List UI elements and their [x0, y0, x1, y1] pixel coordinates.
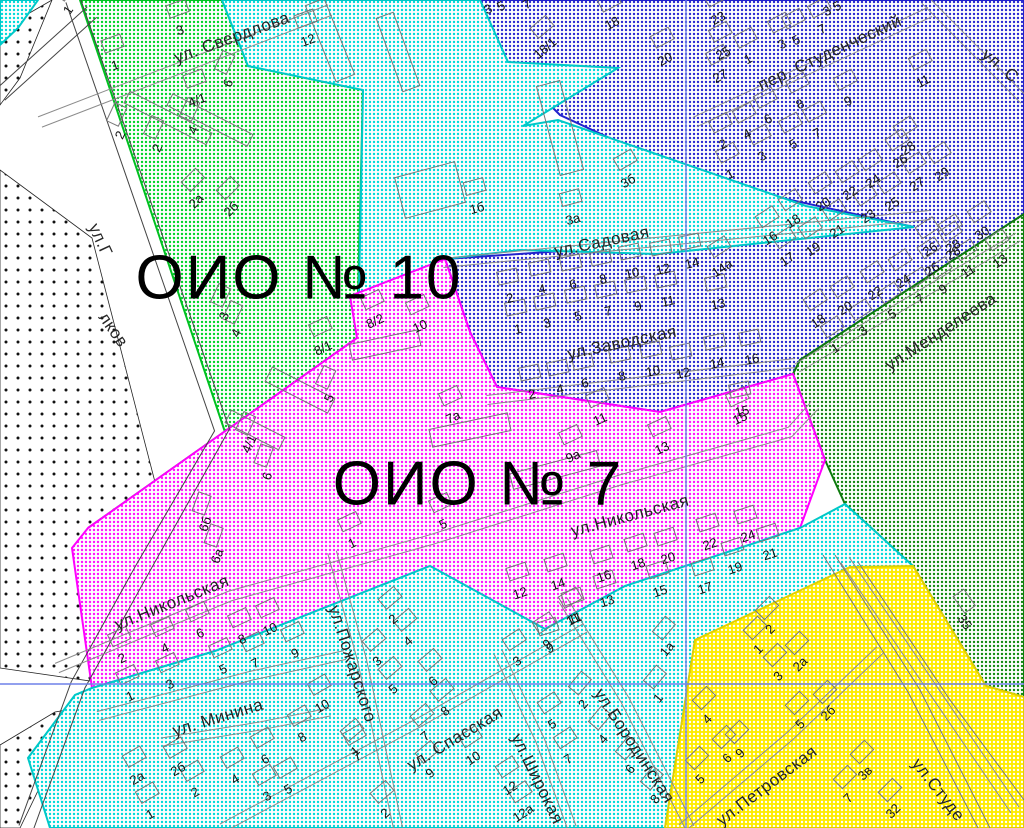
building-outline — [54, 0, 76, 1]
map-graphics — [0, 0, 1024, 828]
zoning-map-canvas[interactable]: ОИО № 10 ОИО № 7 ул. Свердловапер. Студе… — [0, 0, 1024, 828]
